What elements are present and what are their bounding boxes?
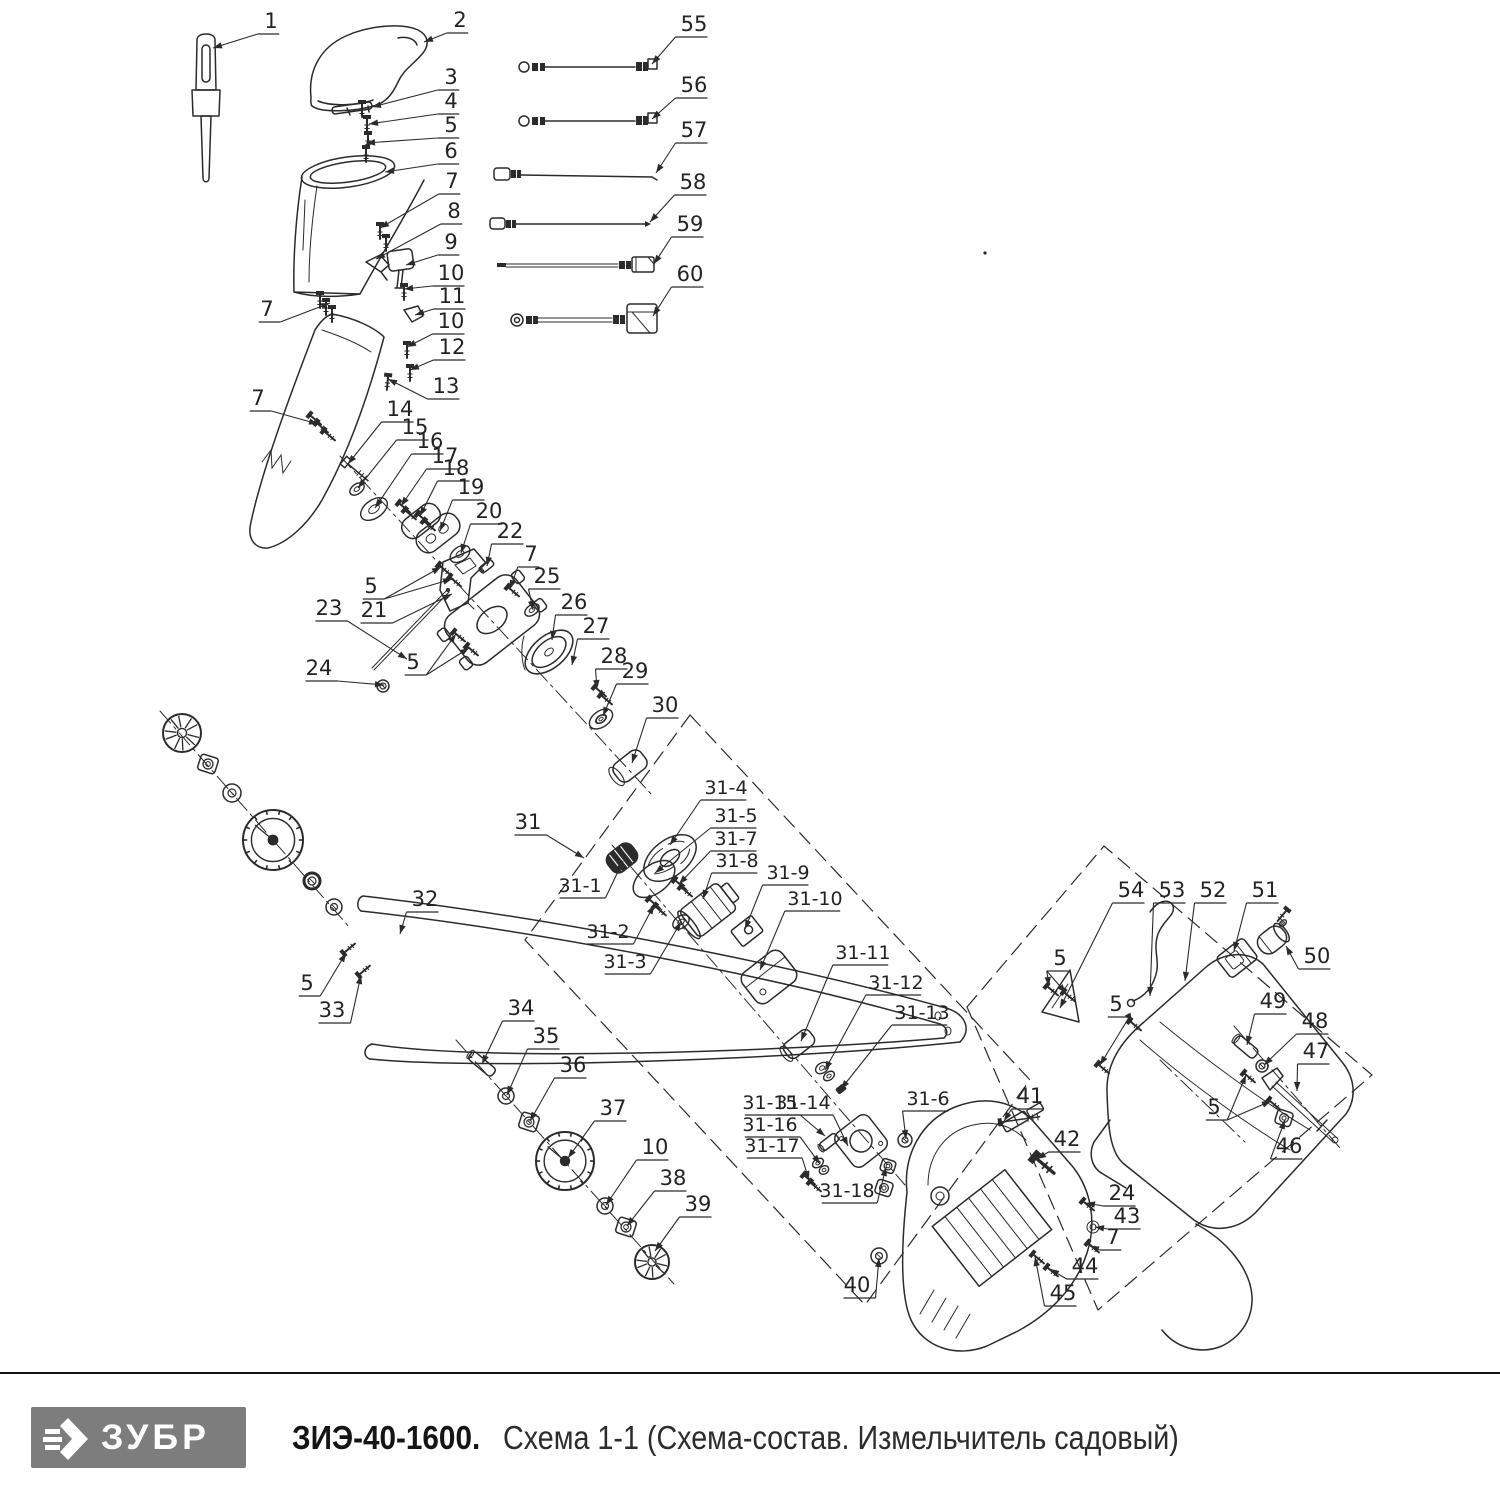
callout-31-2: 31-2 [586,905,654,944]
svg-text:26: 26 [561,590,588,614]
callout-5: 5 [405,634,469,675]
svg-text:10: 10 [642,1135,669,1159]
svg-text:31-2: 31-2 [586,921,629,943]
svg-text:53: 53 [1159,878,1186,902]
svg-text:34: 34 [508,996,535,1020]
callout-7: 7 [250,386,318,425]
stray-dot [983,251,986,254]
svg-text:39: 39 [685,1192,712,1216]
svg-text:31-18: 31-18 [819,1180,874,1202]
callout-31-17: 31-17 [744,1135,809,1180]
wheel-cap [635,1245,669,1279]
screw-fastener [339,941,357,958]
svg-text:31-1: 31-1 [558,875,601,897]
nut [874,1179,894,1198]
svg-text:59: 59 [677,212,704,236]
svg-text:19: 19 [458,475,485,499]
svg-text:31-16: 31-16 [742,1114,797,1136]
svg-text:24: 24 [306,656,333,680]
wheel [243,810,303,870]
part-spring-pin-47 [1262,1068,1338,1143]
svg-text:10: 10 [438,309,465,333]
callout-37: 37 [568,1096,627,1158]
svg-text:5: 5 [406,650,419,674]
svg-text:31-4: 31-4 [704,777,747,799]
callout-21: 21 [361,594,453,623]
brand-name: ЗУБР [101,1418,210,1458]
callout-57: 57 [656,118,708,173]
svg-text:57: 57 [681,118,708,142]
screw-fastener [676,882,694,899]
callout-53: 53 [1147,878,1185,996]
screw-fastener [354,963,372,980]
part-cable-56 [519,113,657,126]
svg-text:7: 7 [260,297,273,321]
cylinder-part [1231,1033,1260,1060]
washer [304,873,320,889]
callout-52: 52 [1183,878,1227,981]
title-block: ЗУБР ЗИЭ-40-1600. Схема 1-1 (Схема-соста… [0,1372,1500,1500]
nut [197,754,219,775]
svg-text:3: 3 [444,65,457,89]
schematic-page: 1234567891011101213775556575859601415161… [0,0,1500,1500]
svg-text:35: 35 [533,1024,560,1048]
svg-text:45: 45 [1050,1281,1077,1305]
svg-text:52: 52 [1200,878,1227,902]
svg-text:21: 21 [361,598,388,622]
svg-text:24: 24 [1109,1181,1136,1205]
model-number: ЗИЭ-40-1600. [292,1419,480,1457]
callout-31-13: 31-13 [841,1002,950,1089]
svg-text:56: 56 [681,73,708,97]
svg-text:7: 7 [445,169,458,193]
drawing-subtitle: Схема 1-1 (Схема-состав. Измельчитель са… [503,1419,1179,1457]
svg-text:5: 5 [1053,946,1066,970]
svg-text:31-12: 31-12 [868,972,923,994]
svg-text:13: 13 [433,374,460,398]
nut [615,1217,637,1238]
callout-5: 5 [299,953,346,996]
svg-text:8: 8 [447,199,460,223]
callout-31-10: 31-10 [760,888,843,970]
washer [223,784,241,802]
callout-13: 13 [388,374,460,399]
svg-text:10: 10 [438,261,465,285]
svg-text:31-10: 31-10 [787,888,842,910]
svg-text:11: 11 [439,284,466,308]
screw-fastener [328,305,336,322]
svg-text:25: 25 [534,564,561,588]
washer [498,1088,514,1104]
svg-text:9: 9 [444,230,457,254]
screw-fastener [400,283,408,300]
svg-text:22: 22 [497,519,524,543]
drawing-title: ЗИЭ-40-1600. Схема 1-1 (Схема-состав. Из… [292,1407,1280,1468]
callouts-layer: 1234567891011101213775556575859601415161… [213,8,1331,1306]
svg-text:23: 23 [316,596,343,620]
callout-12: 12 [410,335,466,370]
svg-text:7: 7 [1106,1225,1119,1249]
callout-5: 5 [363,567,452,599]
svg-text:31-8: 31-8 [715,850,758,872]
svg-text:5: 5 [300,971,313,995]
svg-text:31-17: 31-17 [744,1135,799,1157]
callout-24: 24 [306,656,385,687]
svg-text:31-13: 31-13 [894,1002,949,1024]
svg-text:60: 60 [677,262,704,286]
svg-text:44: 44 [1072,1254,1099,1278]
svg-text:38: 38 [660,1166,687,1190]
washer [586,705,616,733]
wheel [536,1132,594,1190]
zubr-arrow-icon [41,1412,93,1464]
screw-fastener [403,341,411,358]
callout-32: 32 [399,887,438,934]
svg-text:1: 1 [264,9,277,33]
brand-logo: ЗУБР [31,1407,246,1468]
svg-text:49: 49 [1260,989,1287,1013]
callout-39: 39 [655,1192,712,1251]
callout-31: 31 [515,810,585,858]
callout-45: 45 [1034,1257,1077,1306]
cylinder-part [778,1027,817,1063]
callout-47: 47 [1294,1039,1330,1091]
svg-text:41: 41 [1017,1084,1044,1108]
washer [594,713,608,726]
svg-text:31-7: 31-7 [714,828,757,850]
svg-text:31-14: 31-14 [775,1092,830,1114]
svg-text:31-11: 31-11 [835,942,890,964]
part-cable-59 [497,257,654,272]
screw-fastener [1275,905,1292,923]
svg-text:48: 48 [1302,1009,1329,1033]
part-cable-60 [511,304,657,333]
callout-30: 30 [632,693,679,763]
svg-text:7: 7 [524,542,537,566]
svg-text:58: 58 [680,170,707,194]
part-switch-button [387,248,415,288]
callout-42: 42 [1037,1127,1081,1159]
part-knob-50 [1253,921,1292,958]
svg-text:51: 51 [1252,878,1279,902]
callout-38: 38 [627,1166,687,1226]
svg-text:31-9: 31-9 [766,862,809,884]
callout-22: 22 [486,519,524,566]
svg-text:7: 7 [251,386,264,410]
callout-50: 50 [1286,944,1331,969]
washer [357,493,392,525]
washer [818,1164,831,1176]
svg-text:40: 40 [844,1273,871,1297]
callout-60: 60 [653,262,704,316]
svg-text:46: 46 [1276,1134,1303,1158]
svg-text:31-5: 31-5 [714,805,757,827]
svg-text:42: 42 [1054,1127,1081,1151]
cylinder-part [606,747,650,788]
part-hopper-funnel [294,151,424,297]
svg-text:6: 6 [444,139,457,163]
callout-59: 59 [654,212,704,264]
svg-text:37: 37 [600,1096,627,1120]
svg-text:5: 5 [444,113,457,137]
svg-text:47: 47 [1303,1039,1330,1063]
callout-55: 55 [652,12,708,64]
screw-fastener [362,145,370,162]
svg-text:54: 54 [1118,878,1145,902]
svg-text:33: 33 [319,998,346,1022]
module-31-boundary [525,715,1030,1305]
svg-text:36: 36 [560,1053,587,1077]
part-push-stick [192,34,220,182]
washer [326,899,342,915]
svg-text:5: 5 [1207,1095,1220,1119]
hardware-layer [163,100,1294,1279]
part-feed-chute [250,314,384,548]
svg-text:30: 30 [652,693,679,717]
svg-text:29: 29 [622,659,649,683]
svg-text:50: 50 [1304,944,1331,968]
washer [822,1069,836,1082]
part-cable-57 [494,168,657,180]
svg-text:27: 27 [583,614,610,638]
part-cable-58 [490,218,651,229]
part-cable-55 [519,59,657,72]
screw-fastener [406,364,414,381]
exploded-diagram: 1234567891011101213775556575859601415161… [0,0,1500,1372]
callout-56: 56 [652,73,708,119]
svg-text:4: 4 [444,89,457,113]
svg-text:12: 12 [439,335,466,359]
callout-35: 35 [507,1024,560,1095]
callout-2: 2 [424,8,468,42]
svg-text:5: 5 [1109,992,1122,1016]
cylinder-part [817,1132,840,1153]
nut [879,1158,896,1174]
washer [447,542,473,566]
callout-31-8: 31-8 [703,850,759,899]
svg-text:32: 32 [412,887,439,911]
svg-text:55: 55 [681,12,708,36]
wheel-cap [163,714,201,752]
svg-text:31-3: 31-3 [603,951,646,973]
callout-1: 1 [213,9,279,48]
svg-text:31-6: 31-6 [906,1088,949,1110]
svg-text:2: 2 [453,8,466,32]
svg-text:31: 31 [515,810,542,834]
callout-49: 49 [1246,989,1286,1045]
callout-33: 33 [319,975,363,1023]
svg-text:5: 5 [364,574,377,598]
